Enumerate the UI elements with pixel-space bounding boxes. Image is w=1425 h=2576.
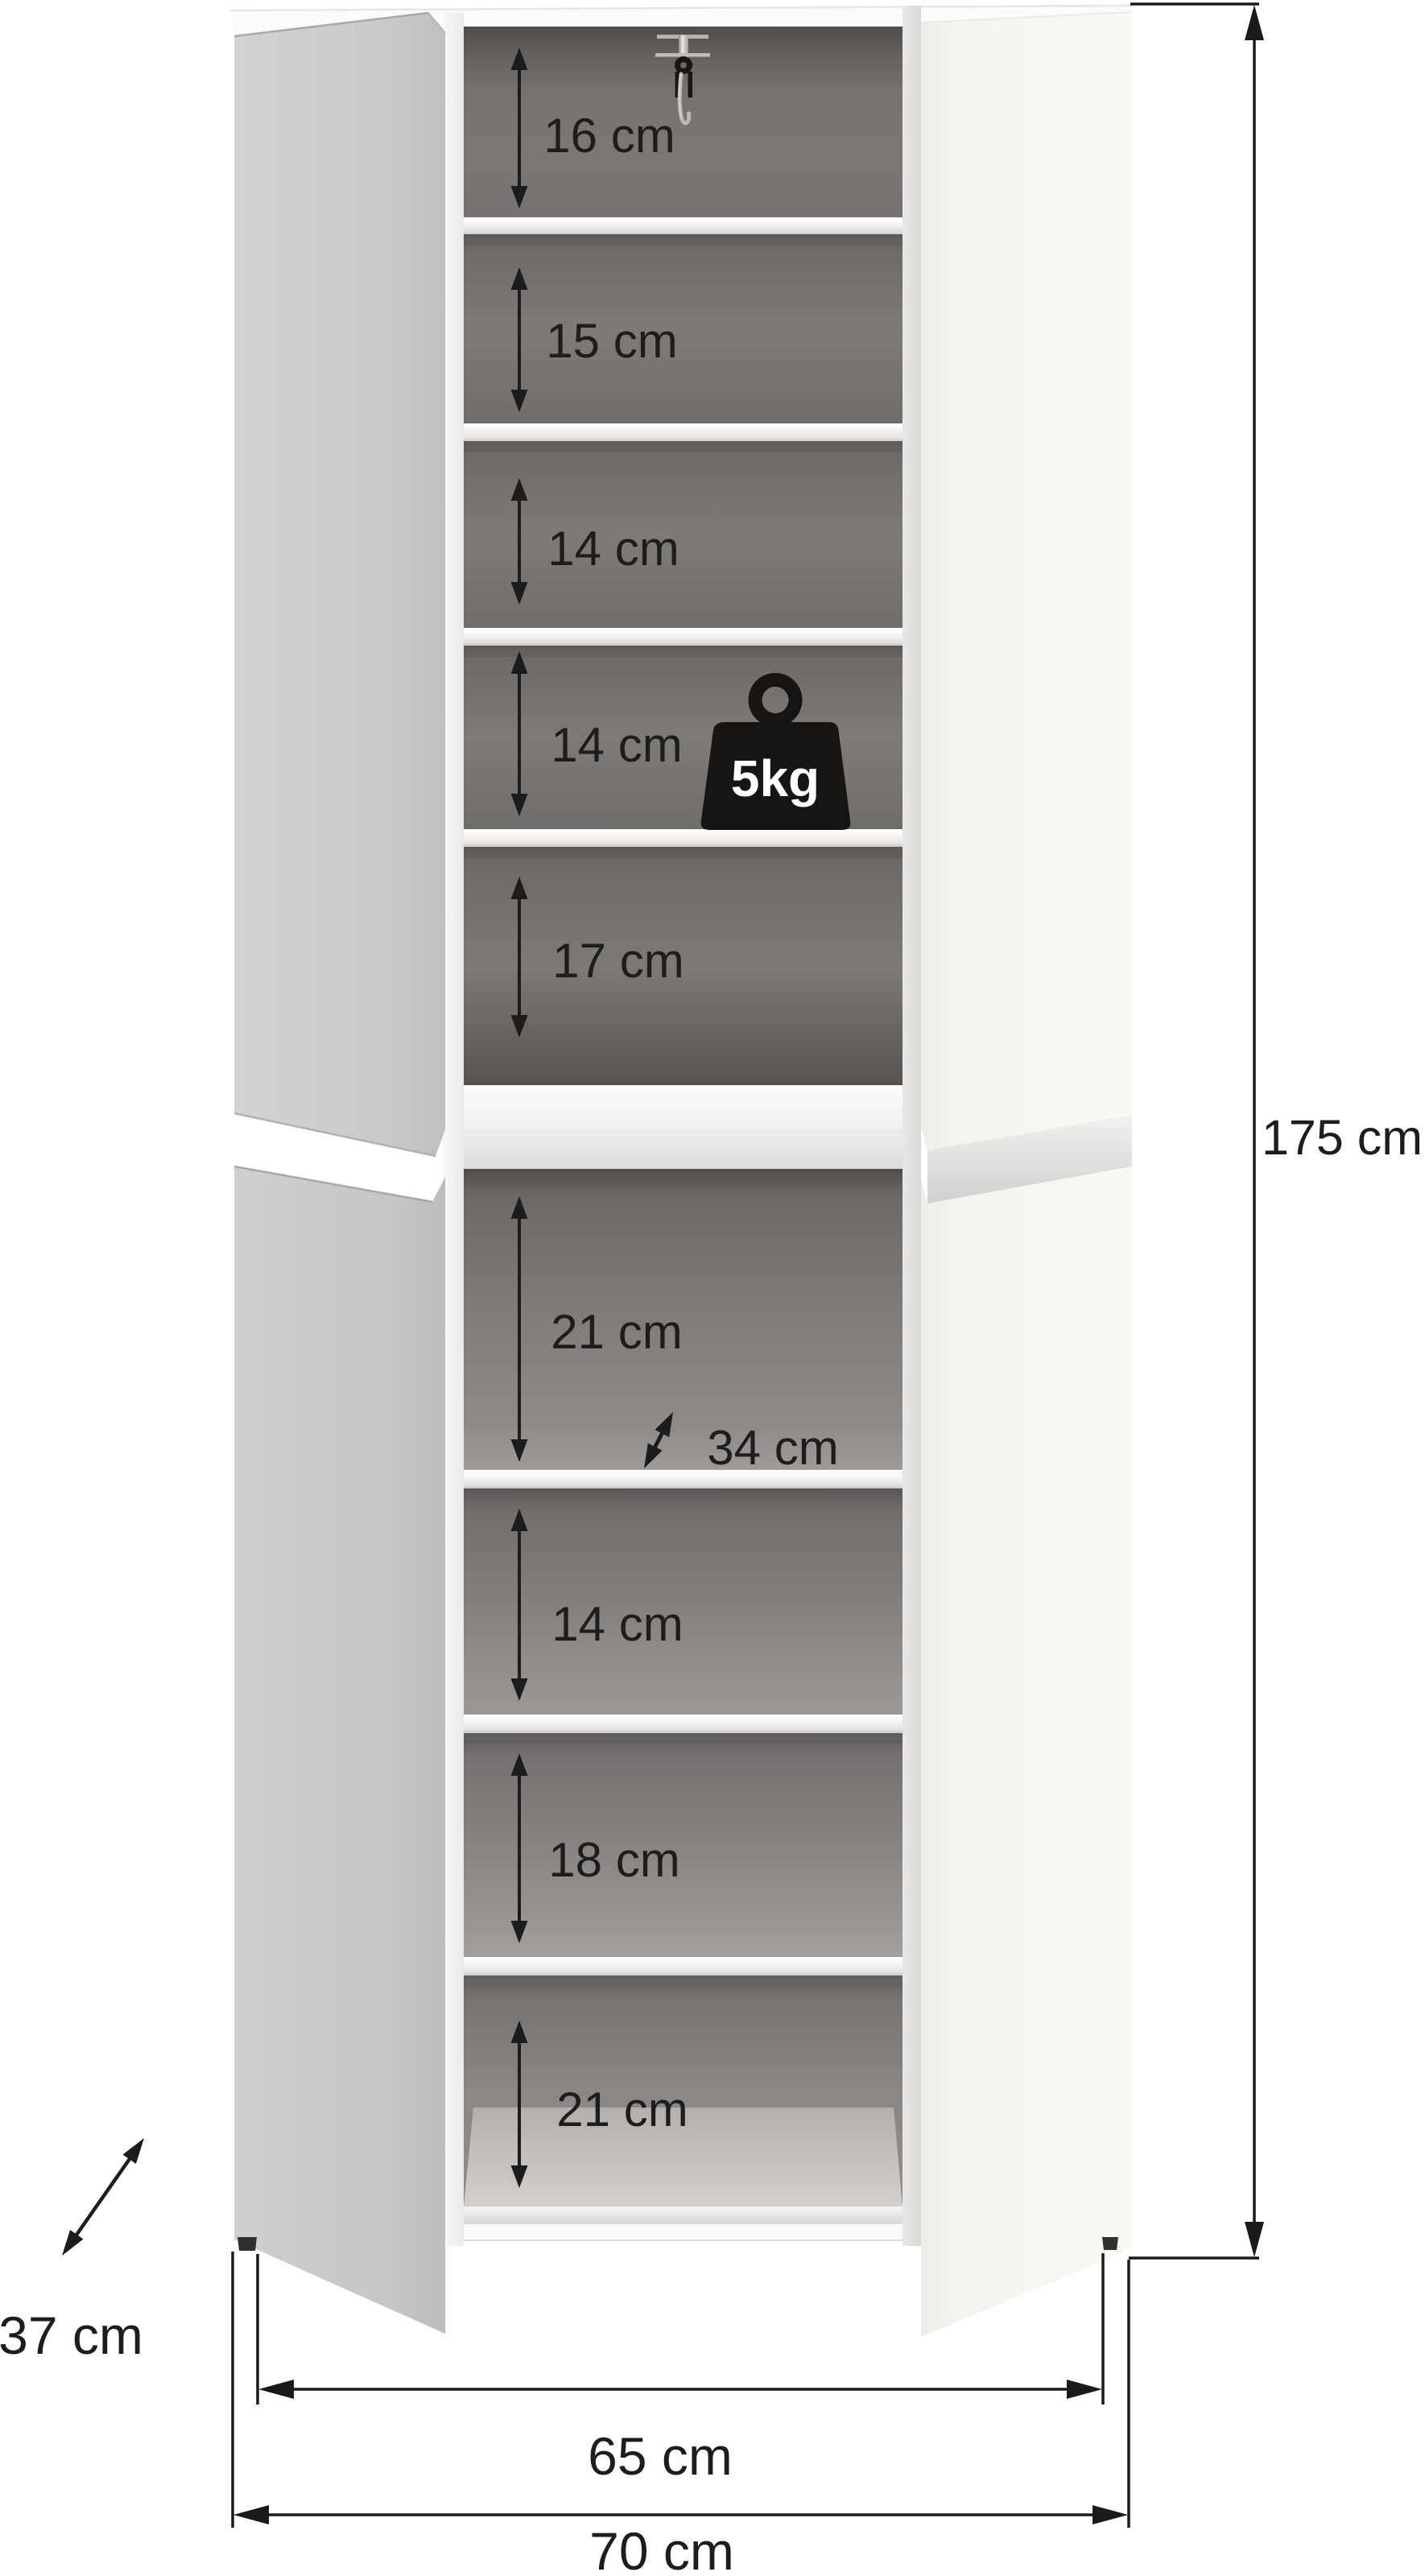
- svg-text:70 cm: 70 cm: [589, 2521, 734, 2576]
- svg-text:17 cm: 17 cm: [552, 934, 684, 988]
- svg-text:34 cm: 34 cm: [707, 1421, 838, 1475]
- svg-text:21 cm: 21 cm: [551, 1305, 682, 1359]
- svg-text:37 cm: 37 cm: [0, 2306, 143, 2365]
- svg-text:14 cm: 14 cm: [551, 718, 682, 772]
- svg-text:15 cm: 15 cm: [546, 314, 677, 368]
- svg-text:21 cm: 21 cm: [556, 2083, 688, 2136]
- svg-text:175 cm: 175 cm: [1262, 1110, 1423, 1165]
- svg-text:16 cm: 16 cm: [543, 109, 675, 163]
- svg-text:18 cm: 18 cm: [548, 1833, 679, 1887]
- svg-text:65 cm: 65 cm: [588, 2426, 733, 2486]
- svg-text:14 cm: 14 cm: [547, 522, 679, 576]
- svg-text:14 cm: 14 cm: [551, 1597, 683, 1651]
- svg-text:5kg: 5kg: [731, 749, 820, 807]
